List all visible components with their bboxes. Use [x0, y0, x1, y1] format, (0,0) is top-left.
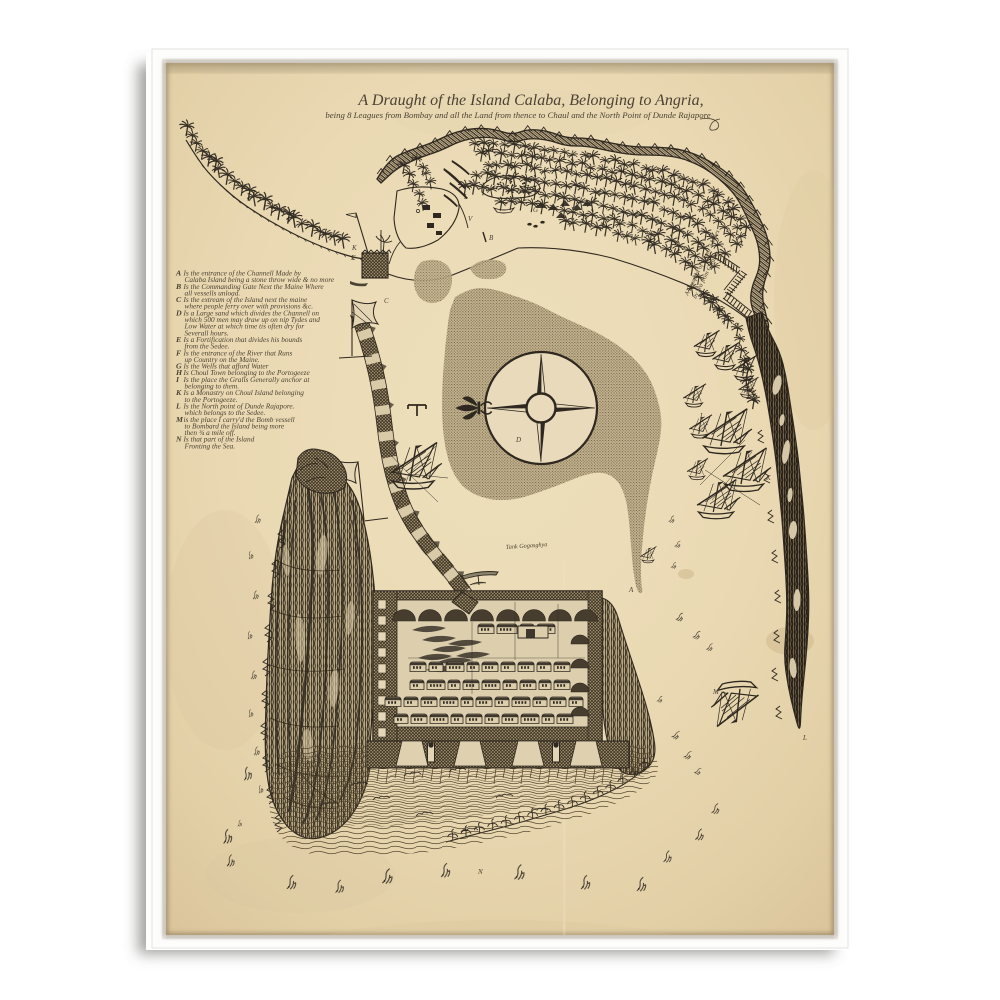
- svg-text:B: B: [489, 234, 494, 242]
- svg-text:K: K: [765, 474, 771, 482]
- svg-text:C: C: [176, 295, 182, 304]
- svg-text:G: G: [533, 206, 538, 214]
- svg-text:E: E: [350, 253, 356, 262]
- svg-text:K: K: [175, 388, 182, 397]
- svg-text:M: M: [712, 688, 720, 696]
- svg-text:N: N: [477, 868, 483, 876]
- svg-text:D: D: [515, 436, 521, 444]
- svg-text:L: L: [802, 734, 807, 742]
- svg-text:V: V: [468, 215, 473, 223]
- svg-text:B: B: [175, 282, 181, 291]
- svg-text:K: K: [351, 244, 357, 252]
- svg-text:E: E: [175, 335, 181, 344]
- svg-text:L: L: [175, 402, 181, 411]
- svg-text:D: D: [175, 308, 182, 317]
- svg-text:A: A: [175, 269, 181, 278]
- svg-text:being 8 Leagues from Bombay an: being 8 Leagues from Bombay and all the …: [325, 110, 710, 120]
- svg-text:A Draught of the Island Calaba: A Draught of the Island Calaba, Belongin…: [357, 92, 703, 109]
- svg-text:A: A: [628, 586, 634, 594]
- svg-text:Fronting the Sea.: Fronting the Sea.: [184, 441, 236, 450]
- svg-text:F: F: [176, 348, 182, 357]
- svg-text:H: H: [733, 322, 740, 330]
- svg-text:C: C: [384, 297, 389, 305]
- svg-text:N: N: [175, 435, 182, 444]
